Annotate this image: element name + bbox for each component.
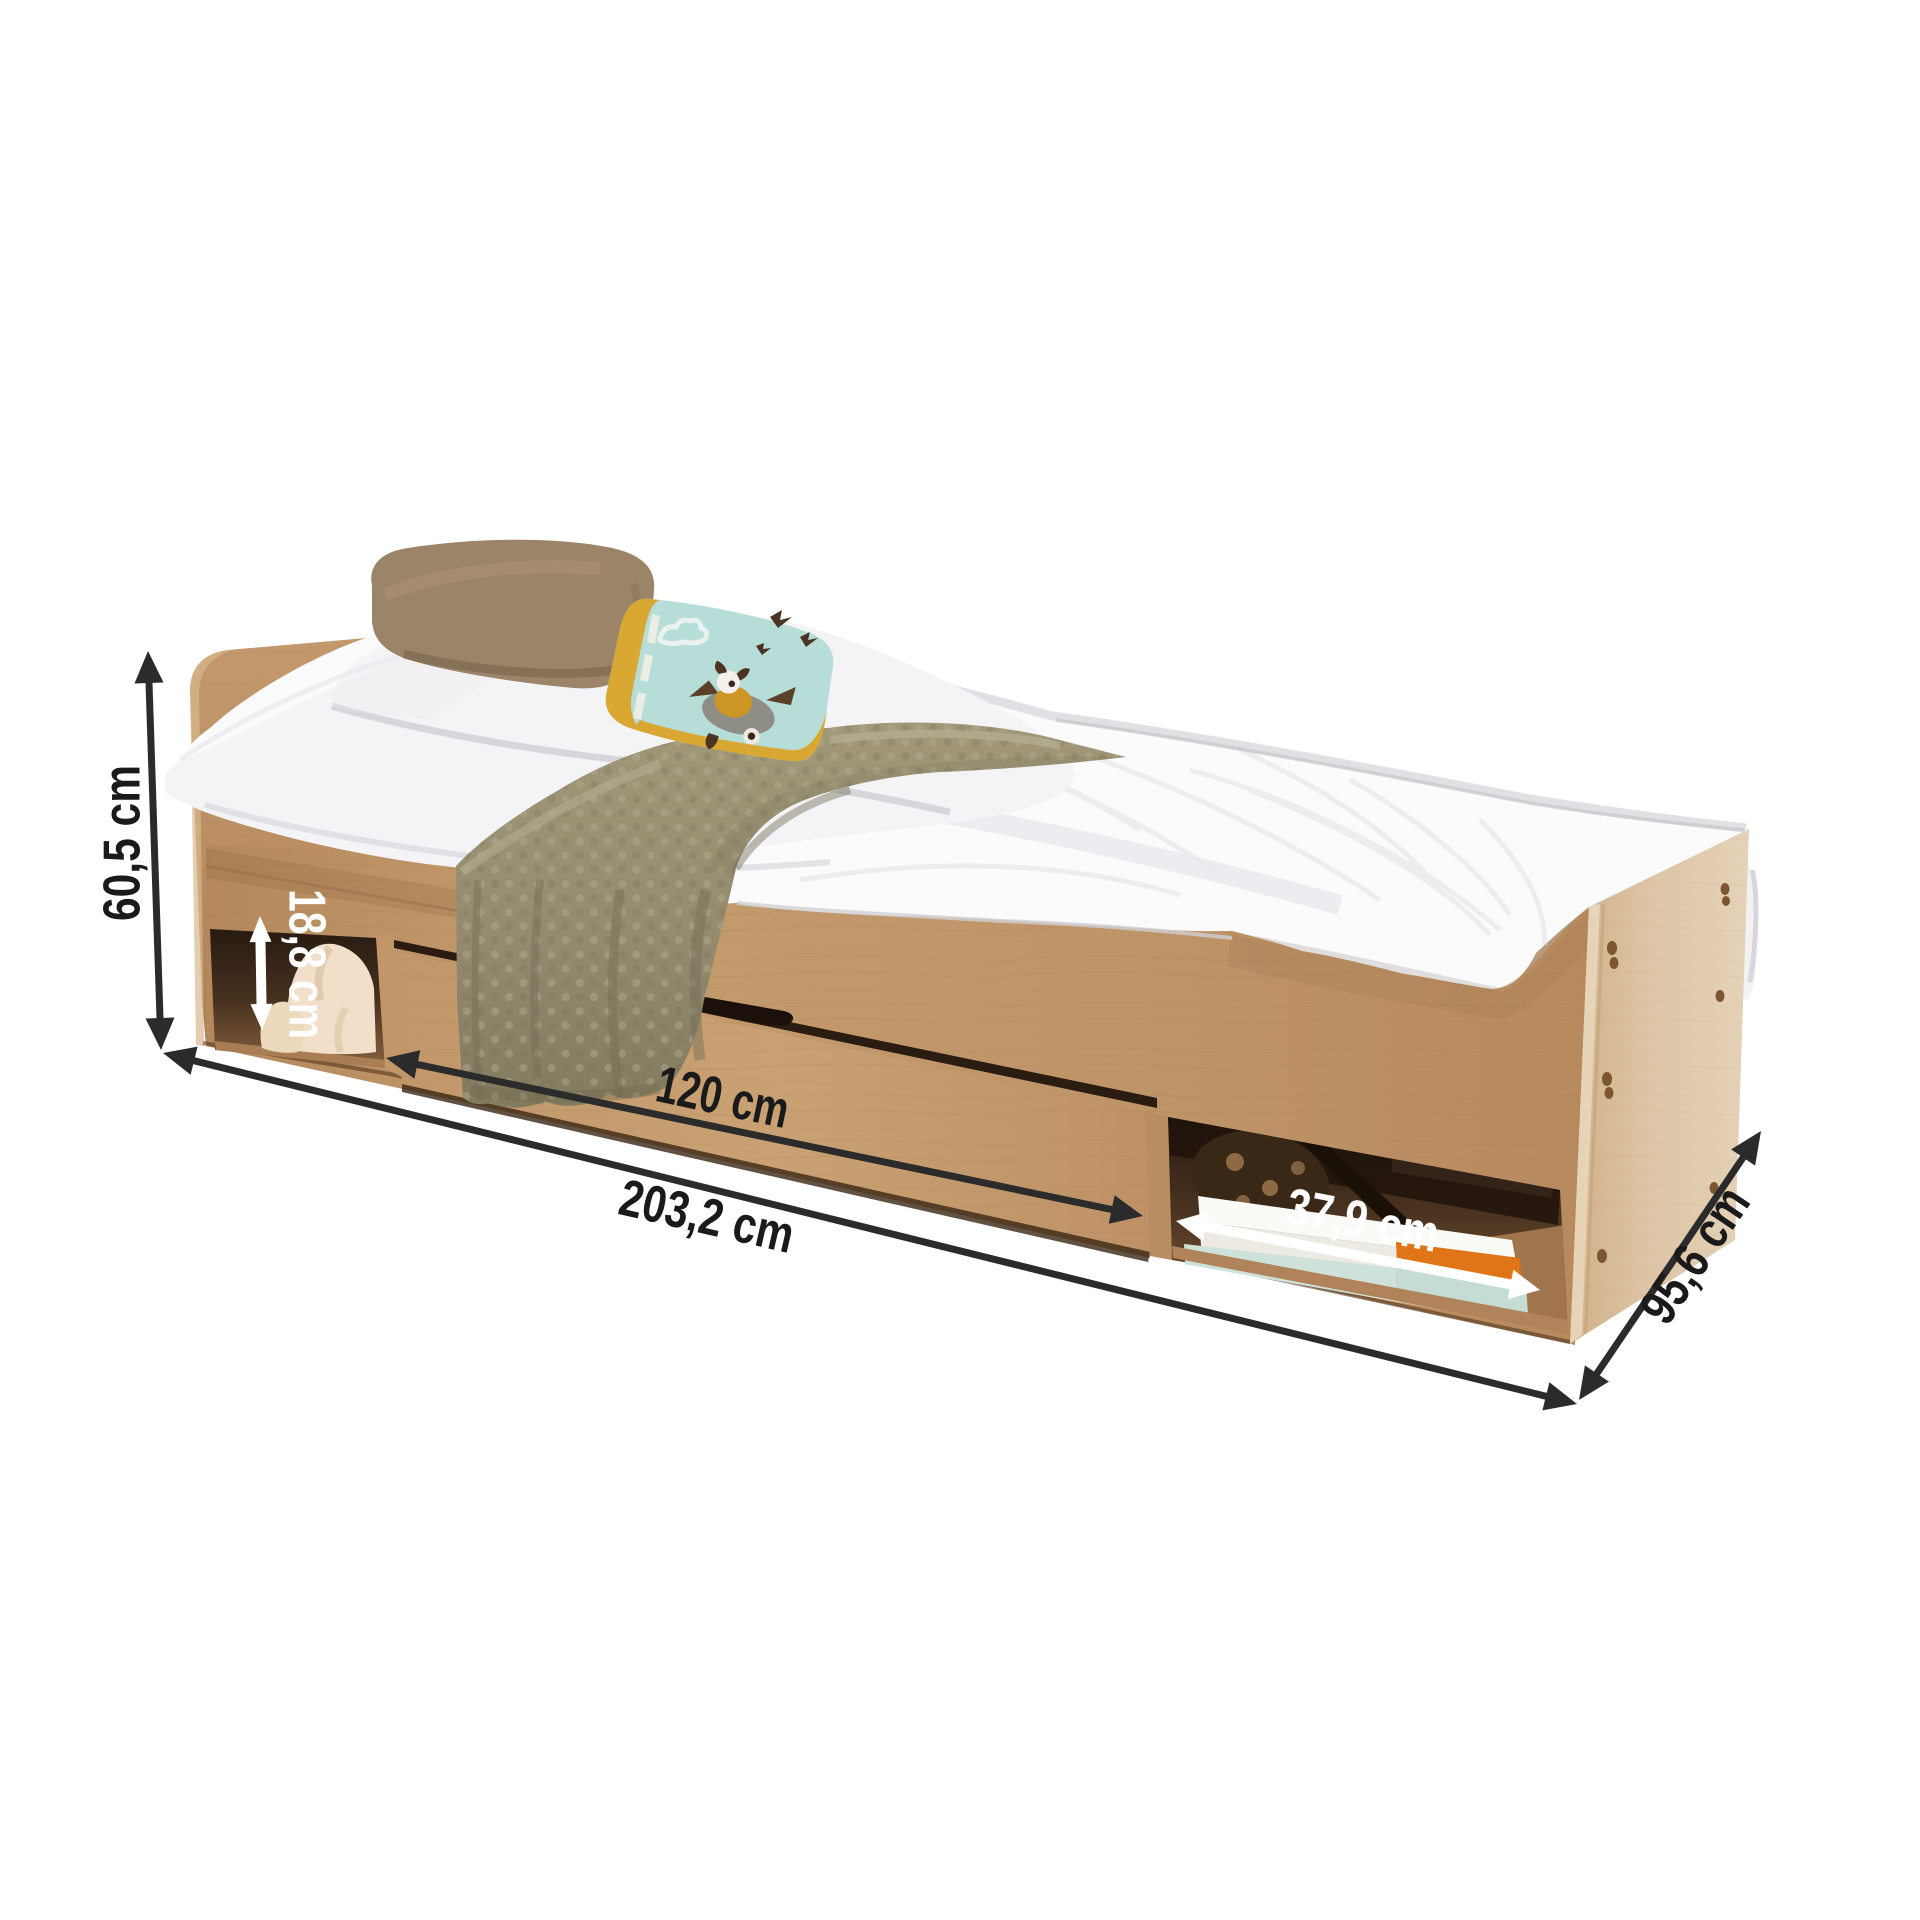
svg-text:18,8 cm: 18,8 cm xyxy=(277,889,335,1039)
svg-text:60,5 cm: 60,5 cm xyxy=(94,765,152,921)
